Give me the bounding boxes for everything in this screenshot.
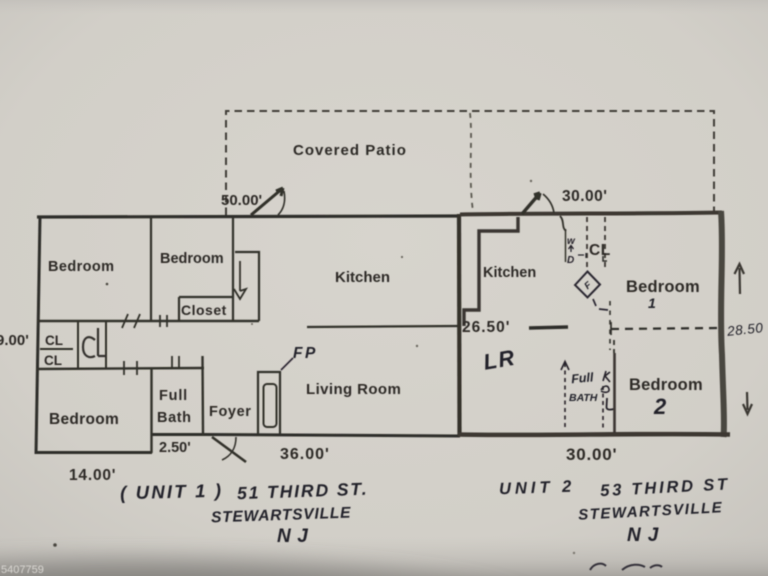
svg-text:( UNIT 1 ): ( UNIT 1 ) bbox=[120, 480, 224, 504]
svg-text:50.00': 50.00' bbox=[221, 192, 262, 209]
svg-text:Bedroom: Bedroom bbox=[49, 411, 119, 428]
svg-text:2: 2 bbox=[653, 394, 667, 419]
svg-text:Kitchen: Kitchen bbox=[483, 265, 536, 281]
svg-text:Covered Patio: Covered Patio bbox=[293, 142, 407, 159]
svg-text:CL: CL bbox=[44, 353, 62, 368]
svg-text:26.50': 26.50' bbox=[462, 319, 510, 336]
svg-text:Bedroom: Bedroom bbox=[629, 376, 703, 394]
svg-text:Foyer: Foyer bbox=[209, 404, 252, 420]
svg-text:Bedroom: Bedroom bbox=[626, 278, 700, 296]
svg-text:36.00': 36.00' bbox=[280, 446, 330, 463]
svg-text:Living Room: Living Room bbox=[306, 381, 401, 398]
svg-text:30.00': 30.00' bbox=[562, 188, 607, 205]
svg-text:9.00': 9.00' bbox=[0, 332, 29, 349]
svg-text:Bath: Bath bbox=[157, 410, 192, 426]
svg-text:Full: Full bbox=[571, 370, 595, 386]
svg-text:Kitchen: Kitchen bbox=[335, 269, 390, 286]
svg-text:Full: Full bbox=[159, 388, 188, 404]
svg-text:NJ: NJ bbox=[277, 526, 314, 547]
svg-text:UNIT 2: UNIT 2 bbox=[499, 478, 576, 499]
svg-text:Closet: Closet bbox=[181, 302, 227, 318]
svg-text:Bedroom: Bedroom bbox=[48, 259, 114, 275]
svg-text:CL: CL bbox=[589, 242, 611, 259]
svg-text:30.00': 30.00' bbox=[566, 445, 617, 464]
svg-text:BATH: BATH bbox=[569, 392, 598, 404]
svg-text:5407759: 5407759 bbox=[1, 564, 44, 576]
svg-text:1: 1 bbox=[648, 295, 656, 311]
svg-text:CL: CL bbox=[45, 333, 63, 348]
svg-text:NJ: NJ bbox=[627, 525, 665, 546]
svg-text:D: D bbox=[567, 255, 574, 266]
svg-text:14.00': 14.00' bbox=[69, 467, 116, 484]
svg-text:FP: FP bbox=[293, 345, 318, 362]
svg-text:2.50': 2.50' bbox=[159, 440, 191, 456]
svg-text:Bedroom: Bedroom bbox=[160, 251, 224, 267]
